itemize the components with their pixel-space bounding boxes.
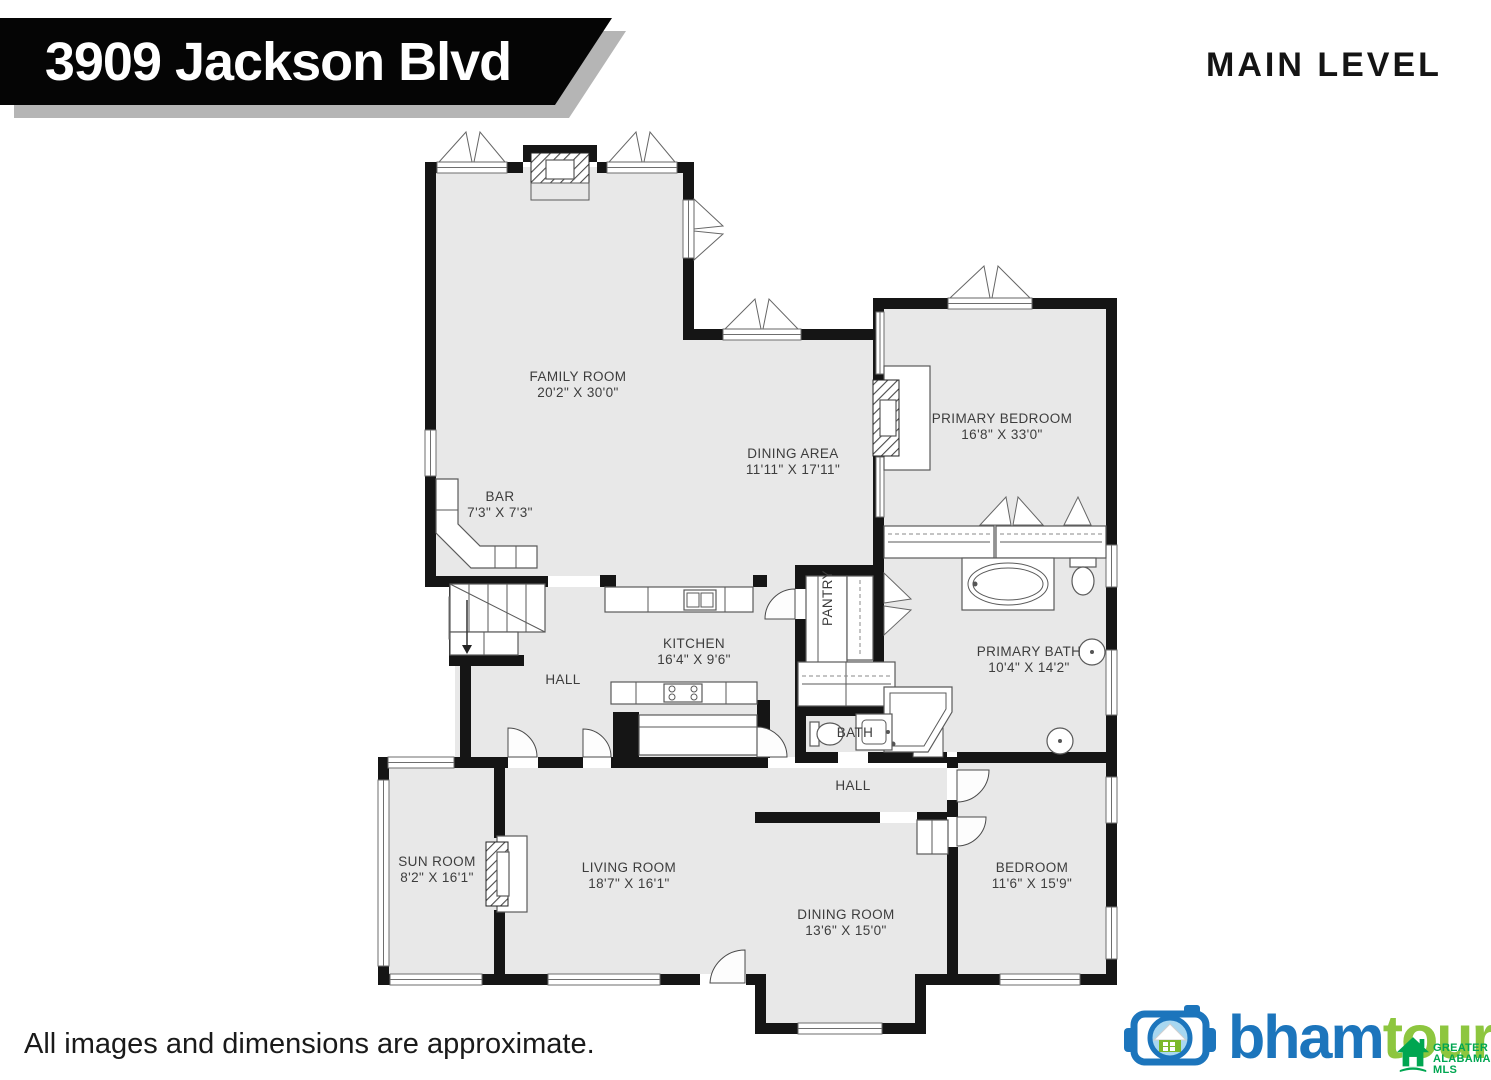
window-marker-icon xyxy=(876,457,884,517)
window-marker-icon xyxy=(798,1023,882,1034)
window-marker-icon xyxy=(378,780,389,966)
window-marker-icon xyxy=(548,974,660,985)
window-marker-icon xyxy=(1106,545,1117,587)
floor-plan-page: 3909 Jackson Blvd MAIN LEVEL xyxy=(0,0,1491,1080)
window-marker-icon xyxy=(1106,650,1117,715)
window-marker-icon xyxy=(388,757,454,768)
floor-plan-svg xyxy=(0,0,1491,1080)
room-label-bedroom: BEDROOM11'6" X 15'9" xyxy=(992,860,1073,892)
toilet-icon xyxy=(1070,558,1096,595)
room-label-dining-area: DINING AREA11'11" X 17'11" xyxy=(746,446,840,478)
logo-text-bham: bham xyxy=(1228,1003,1383,1071)
window-marker-icon xyxy=(1106,907,1117,959)
window-marker-icon xyxy=(948,298,1032,309)
room-label-hall-lower: HALL xyxy=(835,778,870,794)
window-marker-icon xyxy=(1000,974,1080,985)
window-marker-icon xyxy=(390,974,482,985)
window-marker-icon xyxy=(683,200,694,258)
mls-badge: GREATER ALABAMA MLS xyxy=(1396,1036,1491,1076)
mls-text: GREATER ALABAMA MLS xyxy=(1433,1043,1491,1076)
window-marker-icon xyxy=(876,312,884,374)
room-label-pantry: PANTRY xyxy=(820,570,836,626)
room-label-family-room: FAMILY ROOM20'2" X 30'0" xyxy=(530,369,627,401)
window-marker-icon xyxy=(437,162,507,173)
kitchen-sink-icon xyxy=(684,590,716,610)
stove-icon xyxy=(664,684,702,702)
window-marker-icon xyxy=(1106,777,1117,823)
bathtub-icon xyxy=(962,558,1054,610)
room-label-hall-upper: HALL xyxy=(545,672,580,688)
disclaimer-text: All images and dimensions are approximat… xyxy=(24,1028,595,1061)
window-marker-icon xyxy=(425,430,436,476)
room-label-dining-room: DINING ROOM13'6" X 15'0" xyxy=(797,907,894,939)
room-label-living-room: LIVING ROOM18'7" X 16'1" xyxy=(582,860,676,892)
window-marker-icon xyxy=(723,329,801,340)
mls-house-icon xyxy=(1396,1036,1430,1076)
room-label-primary-bath: PRIMARY BATH10'4" X 14'2" xyxy=(977,644,1082,676)
window-marker-icon xyxy=(607,162,677,173)
camera-house-icon xyxy=(1124,1000,1216,1074)
room-label-bar: BAR7'3" X 7'3" xyxy=(467,489,533,521)
fireplace-primary-bedroom xyxy=(873,366,930,470)
room-label-bath: BATH xyxy=(837,725,874,741)
room-label-sun-room: SUN ROOM8'2" X 16'1" xyxy=(398,854,475,886)
fireplace-living-room xyxy=(486,836,527,912)
room-label-kitchen: KITCHEN16'4" X 9'6" xyxy=(657,636,731,668)
room-label-primary-bedroom: PRIMARY BEDROOM16'8" X 33'0" xyxy=(932,411,1073,443)
